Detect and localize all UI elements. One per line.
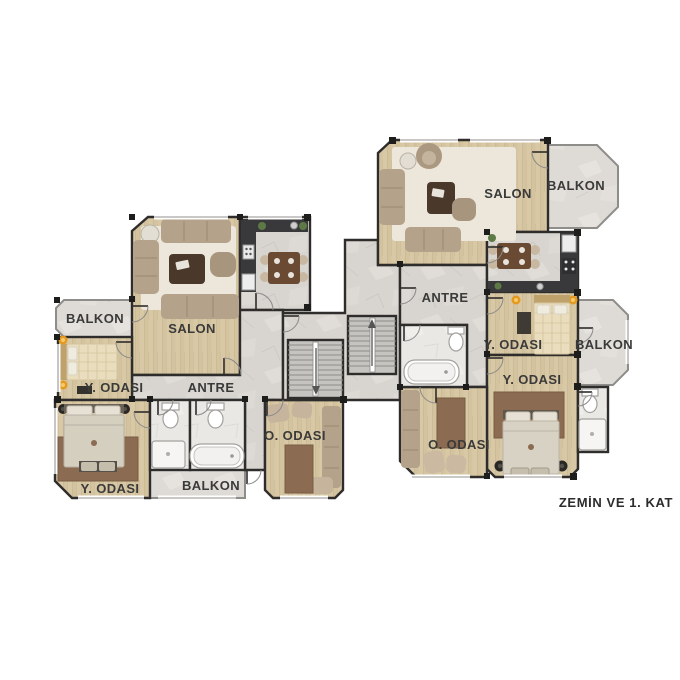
sofa-icon <box>161 294 239 319</box>
pillow-icon <box>554 305 567 314</box>
door-icon <box>247 470 261 484</box>
bed-icon <box>60 344 67 380</box>
left-balcony-left-label: BALKON <box>66 311 124 326</box>
right-sitting-room-label: O. ODASI <box>428 437 490 452</box>
sink-icon <box>537 283 543 289</box>
floor-cushion-icon <box>445 454 467 475</box>
side-table-icon <box>400 153 416 169</box>
plant-icon <box>299 222 307 230</box>
armchair-icon <box>452 198 476 221</box>
floor-plan: BALKON Y. ODASI SALON ANTRE Y. ODASI BAL… <box>0 0 680 680</box>
left-kitchen-furniture <box>241 219 308 292</box>
counter-icon <box>488 281 578 292</box>
left-bedroom-upper-label: Y. ODASI <box>85 380 144 395</box>
left-salon-furniture <box>133 219 239 319</box>
floor-plan-page: BALKON Y. ODASI SALON ANTRE Y. ODASI BAL… <box>0 0 680 680</box>
left-salon-label: SALON <box>168 321 216 336</box>
pillow-icon <box>68 362 77 375</box>
dining-chair-icon <box>530 259 540 269</box>
left-balcony-bottom-label: BALKON <box>182 478 240 493</box>
plant-icon <box>495 283 502 290</box>
sink-icon <box>291 222 298 229</box>
appliance-icon <box>562 235 576 252</box>
armchair-icon <box>266 403 290 424</box>
right-bedroom-lower-label: Y. ODASI <box>503 372 562 387</box>
sofa-icon <box>161 219 231 243</box>
pillow-icon <box>537 305 550 314</box>
fridge-icon <box>242 274 255 290</box>
pillow-icon <box>68 347 77 360</box>
coffee-table-icon <box>169 254 205 284</box>
left-bedroom-lower-label: Y. ODASI <box>81 481 140 496</box>
right-salon-label: SALON <box>484 186 532 201</box>
sofa-icon <box>405 227 461 252</box>
right-balcony-right-label: BALKON <box>575 337 633 352</box>
stove-icon <box>562 258 576 274</box>
right-balcony-top-label: BALKON <box>547 178 605 193</box>
sofa-icon <box>379 169 405 225</box>
coffee-table-icon <box>427 182 455 214</box>
dining-table-icon <box>268 252 300 284</box>
rug-icon <box>285 445 313 493</box>
right-bedroom-lower-furniture <box>494 392 568 478</box>
dining-chair-icon <box>530 245 540 255</box>
left-antre-label: ANTRE <box>188 380 235 395</box>
sofa-icon <box>133 240 159 294</box>
plant-icon <box>488 234 496 242</box>
floor-title: ZEMİN VE 1. KAT <box>559 495 673 510</box>
sofa-icon <box>401 390 420 468</box>
left-sitting-room-label: O. ODASI <box>264 428 326 443</box>
plant-icon <box>258 222 266 230</box>
stove-icon <box>243 245 254 259</box>
armchair-icon <box>210 252 236 277</box>
bed-icon <box>534 295 570 303</box>
armchair-icon <box>291 401 313 419</box>
right-bedroom-upper-label: Y. ODASI <box>484 337 543 352</box>
right-antre-label: ANTRE <box>422 290 469 305</box>
nightstand-icon <box>517 312 531 334</box>
